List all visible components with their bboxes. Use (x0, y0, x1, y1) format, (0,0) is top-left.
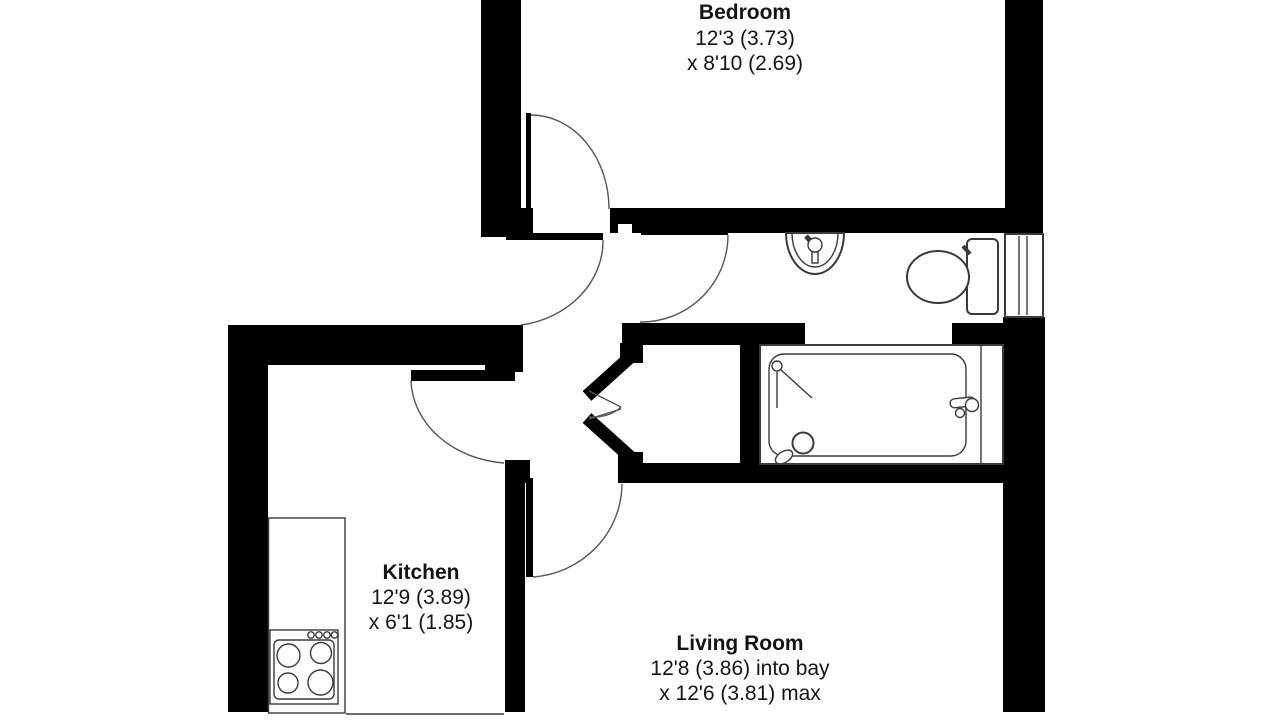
wall-kitchen-right (505, 462, 525, 712)
living-room-dim-2: x 12'6 (3.81) max (659, 682, 821, 705)
bath-plug (793, 433, 814, 454)
hob-burner (278, 673, 298, 693)
bedroom-dim-2: x 8'10 (2.69) (687, 52, 803, 75)
living-room-label: Living Room (676, 632, 803, 655)
door-leaf (526, 113, 531, 209)
hob-knob (324, 632, 330, 638)
door-swing-icon (411, 381, 504, 463)
wall-kitchen-left (228, 325, 268, 712)
door-leaf (641, 228, 728, 235)
door-leaf (526, 478, 533, 577)
toilet-cistern (967, 239, 998, 314)
hob-burner (308, 670, 333, 695)
kitchen-dim-1: 12'9 (3.89) (371, 586, 471, 609)
basin-tap (808, 238, 822, 252)
wall-bathroom-mid-left (622, 323, 805, 345)
bedroom-label: Bedroom (699, 1, 791, 24)
wall-bathroom-mid-right (952, 323, 1005, 345)
wall-kitchen-top (228, 325, 520, 365)
toilet (907, 239, 998, 314)
door-leaf (506, 233, 603, 240)
wall-bathroom-bottom (618, 463, 1005, 483)
kitchen-dim-2: x 6'1 (1.85) (369, 611, 473, 634)
door-leaf (411, 370, 515, 381)
hob-knob (331, 632, 337, 638)
shower-head-icon (772, 361, 782, 371)
door-swing-icon (521, 240, 603, 325)
wall-right-upper (1005, 0, 1043, 233)
wall-bedroom-left-corner (481, 208, 533, 237)
wall-kitchen-top-post (485, 325, 523, 372)
kitchen-door (411, 370, 515, 463)
window-icon (1005, 234, 1043, 317)
wall-cupboard-diagonal-bottom (587, 418, 637, 463)
cooker-hob (270, 630, 338, 704)
floorplan-svg: Bedroom 12'3 (3.73) x 8'10 (2.69) Kitche… (0, 0, 1280, 720)
wash-basin (786, 233, 844, 274)
wall-right-lower (1003, 317, 1045, 712)
door-swing-icon (531, 115, 609, 209)
toilet-icon (907, 251, 969, 303)
bedroom-door (526, 113, 609, 209)
bedroom-dim-1: 12'3 (3.73) (695, 27, 795, 50)
living-room-dim-1: 12'8 (3.86) into bay (650, 657, 830, 680)
entrance-door (506, 233, 603, 325)
hob-knob (316, 632, 322, 638)
basin-tap-stem (812, 252, 818, 263)
wall-bedroom-left (481, 0, 521, 237)
bathroom-door (640, 228, 728, 322)
bifold-door-icon (589, 391, 621, 407)
kitchen-label: Kitchen (382, 561, 459, 584)
hob-burner (311, 643, 332, 664)
door-swing-icon (533, 484, 622, 577)
hob-burner (277, 644, 300, 667)
hob-knob (308, 632, 314, 638)
bath-tap-drip (956, 409, 965, 418)
bathtub (760, 345, 1003, 467)
door-swing-icon (640, 235, 728, 322)
bath-tap-knob (966, 399, 979, 412)
floorplan-page: Bedroom 12'3 (3.73) x 8'10 (2.69) Kitche… (0, 0, 1280, 720)
living-room-door (526, 478, 622, 577)
wall-cupboard-diagonal-top (587, 351, 637, 396)
wall-notch-bathroom-door (618, 224, 632, 233)
bathroom-window (1005, 234, 1043, 317)
